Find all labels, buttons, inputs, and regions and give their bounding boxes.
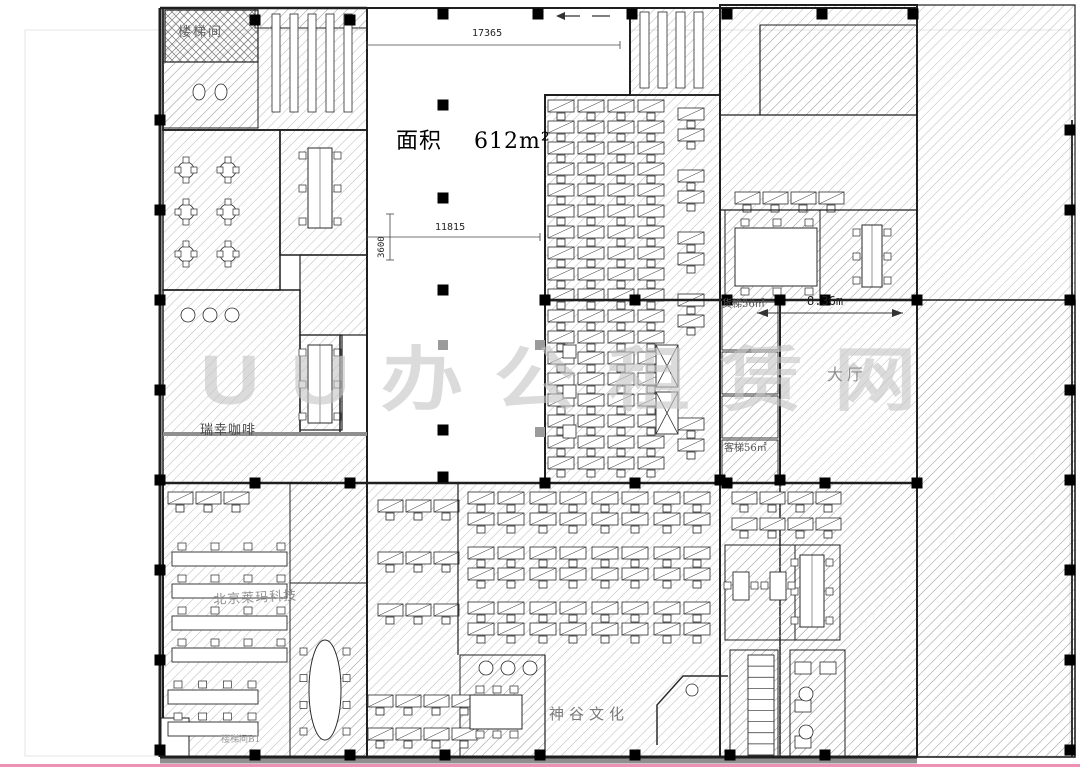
floor-plan-page: UU办公租赁网 面积 612m² 17365 11815 3600 8.36m … bbox=[0, 0, 1080, 769]
luckin-coffee-label: 瑞幸咖啡 bbox=[200, 424, 256, 437]
dim-lobby-width: 8.36m bbox=[807, 295, 843, 307]
stairwell-top-left-label: 楼梯间 bbox=[178, 26, 223, 39]
freight-elevator-label: 货梯56㎡ bbox=[722, 300, 765, 310]
area-label: 面积 612m² bbox=[396, 131, 551, 153]
lobby-label: 大厅 bbox=[827, 367, 867, 383]
passenger-elevator-label: 客梯56㎡ bbox=[724, 444, 767, 454]
stairwell-b1-label: 楼梯间B1 bbox=[221, 736, 260, 745]
dim-left-vertical: 3600 bbox=[378, 236, 387, 258]
dim-mid: 11815 bbox=[435, 223, 465, 233]
dim-top: 17365 bbox=[472, 29, 502, 39]
shengu-culture-label: 神谷文化 bbox=[549, 707, 629, 722]
